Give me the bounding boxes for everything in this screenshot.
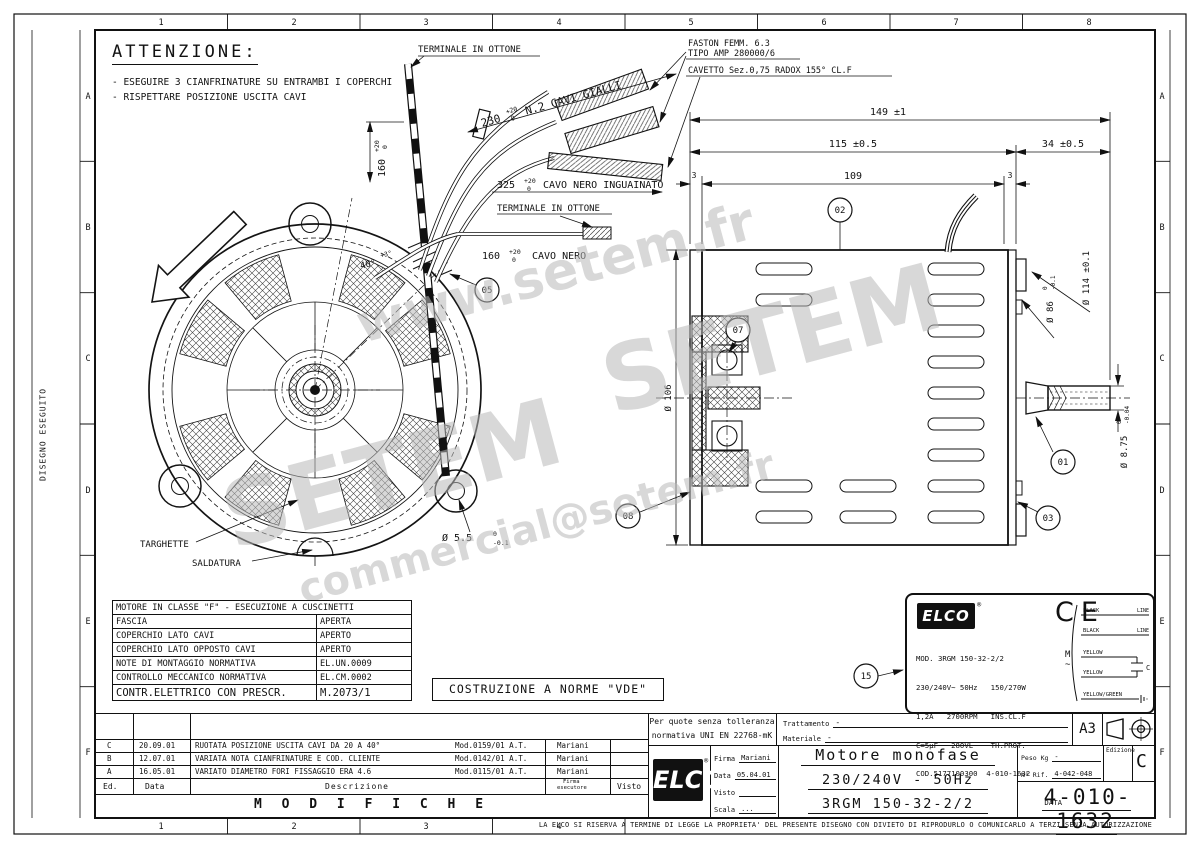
rev-head-firma2: esecutore	[557, 785, 587, 791]
visto-value	[739, 796, 776, 797]
balloon-15: 15	[861, 672, 872, 682]
rev-date: 16.05.01	[139, 767, 175, 776]
zone-left-b: B	[85, 223, 90, 233]
zone-left-a: A	[85, 92, 90, 102]
dim-3-right: 3	[1008, 171, 1013, 180]
rev-head-data: Data	[145, 782, 164, 791]
signature-fields: Firma Mariani Data 05.04.01 Visto Scala …	[714, 746, 776, 814]
scala-label: Scala	[714, 806, 735, 814]
zone-top-6: 6	[821, 18, 826, 28]
dim-149: 149 ±1	[870, 107, 906, 118]
dim-160-dn: 0	[381, 145, 389, 149]
zone-bot-1: 1	[158, 822, 163, 832]
zone-left-d: D	[85, 486, 90, 496]
peso-label: Peso Kg	[1021, 754, 1048, 762]
edizione-label: Edizione	[1106, 747, 1135, 754]
dim-115: 115 ±0.5	[829, 139, 877, 150]
wiring-tilde: ~	[1065, 660, 1071, 670]
dim-875-dn: -0.04	[1124, 406, 1131, 424]
modifiche-title: M O D I F I C H E	[95, 797, 648, 812]
peso-value: -	[1052, 753, 1101, 762]
dim-86: Ø 86	[1045, 301, 1056, 323]
tolerance-line-2: normativa UNI EN 22768-mK	[648, 729, 776, 743]
drawing-title-zone: Motore monofase 230/240V - 50Hz 3RGM 150…	[779, 745, 1017, 818]
rev-date: 12.07.01	[139, 754, 175, 763]
zone-top-5: 5	[688, 18, 693, 28]
rev-desc: VARIATO DIAMETRO FORI FISSAGGIO ERA 4.6	[195, 767, 371, 776]
class-row-label: NOTE DI MONTAGGIO NORMATIVA	[113, 657, 317, 671]
zone-top-2: 2	[291, 18, 296, 28]
tolerance-line-1: Per quote senza tolleranza	[648, 715, 776, 729]
zone-left-f: F	[85, 748, 90, 758]
materiale-value: -	[825, 733, 1068, 743]
label-cavetto: CAVETTO Sez.0,75 RADOX 155° CL.F	[688, 66, 852, 76]
drawing-page: TERMINALE IN OTTONE 160 +20 0 230 +20 0 …	[0, 0, 1200, 848]
rif-value: 4-042-048	[1052, 770, 1101, 779]
class-row-value: APERTO	[317, 643, 412, 657]
nameplate: ELCO ® CE MOD. 3RGM 150-32-2/2 230/240V~…	[905, 593, 1155, 714]
attention-title: ATTENZIONE:	[112, 42, 258, 65]
visto-label: Visto	[714, 789, 735, 797]
zone-left-c: C	[85, 354, 90, 364]
wire-black-1: BLACK	[1083, 608, 1100, 614]
wire-black-2: BLACK	[1083, 628, 1100, 634]
sheathed-cable	[548, 153, 663, 181]
class-row-value: M.2073/1	[317, 685, 412, 701]
nameplate-line: MOD. 3RGM 150-32-2/2	[916, 654, 1068, 664]
trattamento-label: Trattamento	[783, 720, 829, 728]
side-dimensions	[450, 112, 1124, 676]
firma-label: Firma	[714, 755, 735, 763]
zone-right-e: E	[1159, 617, 1164, 627]
zone-bot-3: 3	[423, 822, 428, 832]
label-faston-2: TIPO AMP 280000/6	[688, 49, 775, 59]
rev-firma: Mariani	[557, 741, 589, 750]
drawing-title-2: 230/240V - 50Hz	[808, 772, 988, 790]
edizione-value: C	[1136, 751, 1147, 772]
zone-top-1: 1	[158, 18, 163, 28]
wiring-motor: M	[1065, 650, 1071, 660]
dim-875: Ø 8.75	[1119, 436, 1130, 469]
material-fields: Trattamento - Materiale -	[779, 713, 1073, 745]
dim-86-dn: -0.1	[1050, 275, 1057, 290]
class-row-label: COPERCHIO LATO CAVI	[113, 629, 317, 643]
zone-bot-2: 2	[291, 822, 296, 832]
title-right-zone: Peso Kg - N° Rif. 4-042-048 Edizione C 4…	[1018, 745, 1155, 818]
rev-ed: C	[107, 741, 112, 750]
dim-325-dn: 0	[527, 185, 531, 193]
zone-right-b: B	[1159, 223, 1164, 233]
title-block: ELCO ® Firma Mariani Data 05.04.01 Visto…	[648, 745, 1155, 818]
class-row-value: APERTO	[317, 629, 412, 643]
wire-yellow-2: YELLOW	[1083, 670, 1103, 676]
class-row-label: COPERCHIO LATO OPPOSTO CAVI	[113, 643, 317, 657]
dim-325-up: +20	[524, 177, 536, 185]
attention-block: ATTENZIONE: - ESEGUIRE 3 CIANFRINATURE S…	[112, 42, 452, 105]
dim-160: 160	[377, 159, 388, 177]
dim-109: 109	[844, 171, 862, 182]
class-row-value: EL.UN.0009	[317, 657, 412, 671]
rev-ed: B	[107, 754, 112, 763]
materiale-label: Materiale	[783, 735, 821, 743]
dim-34: 34 ±0.5	[1042, 139, 1084, 150]
wiring-capacitor: C	[1146, 664, 1150, 672]
class-row-label: CONTROLLO MECCANICO NORMATIVA	[113, 671, 317, 685]
shaft	[1016, 382, 1130, 414]
zone-left-e: E	[85, 617, 90, 627]
class-row-label: CONTR.ELETTRICO CON PRESCR.	[113, 685, 317, 701]
company-logo: ELCO	[653, 759, 703, 801]
class-row-value: EL.CM.0002	[317, 671, 412, 685]
sheet-side-label: DISEGNO ESEGUITO	[39, 360, 48, 510]
vde-note: COSTRUZIONE A NORME "VDE"	[432, 678, 664, 701]
dim-86-up: 0	[1042, 286, 1049, 290]
label-faston-1: FASTON FEMM. 6.3	[688, 39, 770, 49]
rev-mod: Mod.0115/01 A.T.	[455, 767, 527, 776]
rev-firma: Mariani	[557, 754, 589, 763]
nameplate-logo: ELCO	[917, 603, 975, 629]
label-targhette: TARGHETTE	[140, 540, 189, 550]
dim-325-label: CAVO NERO INGUAINATO	[543, 180, 663, 191]
dim-875-up: 0	[1116, 420, 1123, 424]
attention-note-2: - RISPETTARE POSIZIONE USCITA CAVI	[112, 90, 452, 105]
rev-ed: A	[107, 767, 112, 776]
zone-right-c: C	[1159, 354, 1164, 364]
zone-top-3: 3	[423, 18, 428, 28]
rev-head-desc: Descrizione	[325, 782, 389, 791]
sheet-format: A3	[1073, 713, 1103, 745]
legal-note: LA ELCO SI RISERVA A TERMINE DI LEGGE LA…	[440, 821, 1152, 829]
zone-right-d: D	[1159, 486, 1164, 496]
motor-class-table: MOTORE IN CLASSE "F" - ESECUZIONE A CUSC…	[112, 600, 412, 701]
data-value: 05.04.01	[735, 771, 776, 780]
rev-date: 20.09.01	[139, 741, 175, 750]
dim-160-up: +20	[373, 140, 381, 152]
rev-firma: Mariani	[557, 767, 589, 776]
rev-mod: Mod.0142/01 A.T.	[455, 754, 527, 763]
rev-head-ed: Ed.	[103, 782, 117, 791]
zone-top-7: 7	[953, 18, 958, 28]
balloon-01: 01	[1058, 458, 1069, 468]
rev-desc: VARIATA NOTA CIANFRINATURE E COD. CLIENT…	[195, 754, 380, 763]
revision-table: C 20.09.01 RUOTATA POSIZIONE USCITA CAVI…	[95, 713, 648, 818]
balloon-03: 03	[1043, 514, 1054, 524]
class-table-header: MOTORE IN CLASSE "F" - ESECUZIONE A CUSC…	[113, 601, 412, 615]
wire-line-1: LINE	[1137, 608, 1149, 614]
scala-value: ...	[739, 805, 776, 814]
label-terminale-2: TERMINALE IN OTTONE	[497, 204, 600, 214]
wire-yellow-1: YELLOW	[1083, 650, 1103, 656]
balloon-02: 02	[835, 206, 846, 216]
nameplate-line: 230/240V~ 50Hz 150/270W	[916, 683, 1068, 693]
projection-symbols	[1103, 713, 1155, 745]
firma-value: Mariani	[739, 754, 776, 763]
rev-mod: Mod.0159/01 A.T.	[455, 741, 527, 750]
tolerance-note: Per quote senza tolleranza normativa UNI…	[648, 713, 777, 745]
rev-desc: RUOTATA POSIZIONE USCITA CAVI DA 20 A 40…	[195, 741, 380, 750]
drawing-title-1: Motore monofase	[801, 746, 994, 766]
rif-label: N° Rif.	[1021, 771, 1048, 779]
wire-line-2: LINE	[1137, 628, 1149, 634]
dim-325: 325	[497, 180, 515, 191]
zone-right-a: A	[1159, 92, 1164, 102]
drawing-title-3: 3RGM 150-32-2/2	[808, 796, 988, 814]
trattamento-value: -	[833, 718, 1068, 728]
company-logo-reg: ®	[704, 757, 708, 765]
class-row-value: APERTA	[317, 615, 412, 629]
label-saldatura: SALDATURA	[192, 559, 241, 569]
dim-114: Ø 114 ±0.1	[1081, 251, 1092, 305]
wire-yellow-green: YELLOW/GREEN	[1083, 692, 1122, 698]
wiring-diagram: M ~ BLACK LINE BLACK LINE YELLOW YELLOW …	[1063, 597, 1153, 710]
dim-3-left: 3	[692, 171, 697, 180]
nameplate-reg: ®	[977, 601, 981, 609]
attention-note-1: - ESEGUIRE 3 CIANFRINATURE SU ENTRAMBI I…	[112, 75, 452, 90]
rev-head-visto: Visto	[617, 782, 641, 791]
data-label: Data	[714, 772, 731, 780]
class-row-label: FASCIA	[113, 615, 317, 629]
zone-top-4: 4	[556, 18, 561, 28]
zone-right-f: F	[1159, 748, 1164, 758]
zone-top-8: 8	[1086, 18, 1091, 28]
